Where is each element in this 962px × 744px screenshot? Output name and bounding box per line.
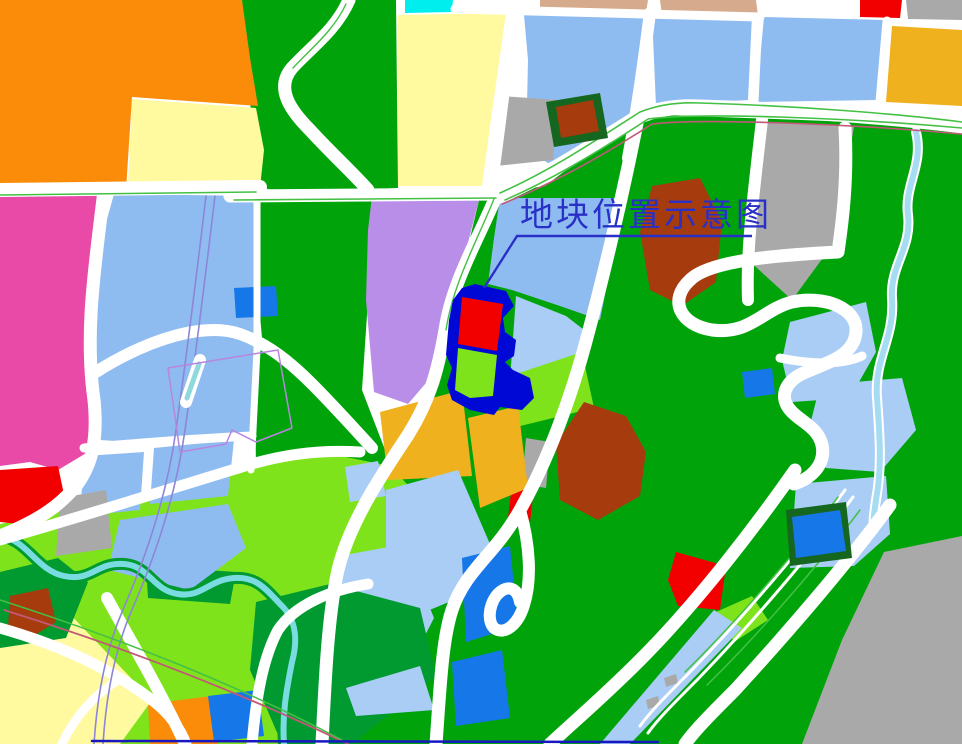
map-viewport: 地块位置示意图 [0,0,962,744]
road-x757 [754,17,758,102]
map-title-label: 地块位置示意图 [520,195,772,234]
parcel-red-topright [860,0,902,18]
parcel-lightblue-top-a [652,14,752,106]
road-left-horizontal [0,187,260,190]
parcel-gray-topright [906,0,962,20]
greenbelt-strip-top [242,0,398,193]
zoning-map-image: 地块位置示意图 [0,0,962,744]
site-green-zone [455,348,497,398]
parcel-cyan-top [405,0,453,13]
utility-parcel-fill [792,510,846,558]
boundary-bottom-line [92,741,658,742]
parcel-lightblue-centerleft [86,194,258,444]
parcel-yellow-topleft [128,99,264,188]
parcel-blue-b3 [742,368,775,398]
road-stem-blue-mid [257,316,259,338]
site-red-zone [458,297,503,351]
parcel-blue-b2 [452,650,510,726]
parcel-lightblue-top-b [756,17,884,102]
parcel-amber-topright [886,26,962,106]
